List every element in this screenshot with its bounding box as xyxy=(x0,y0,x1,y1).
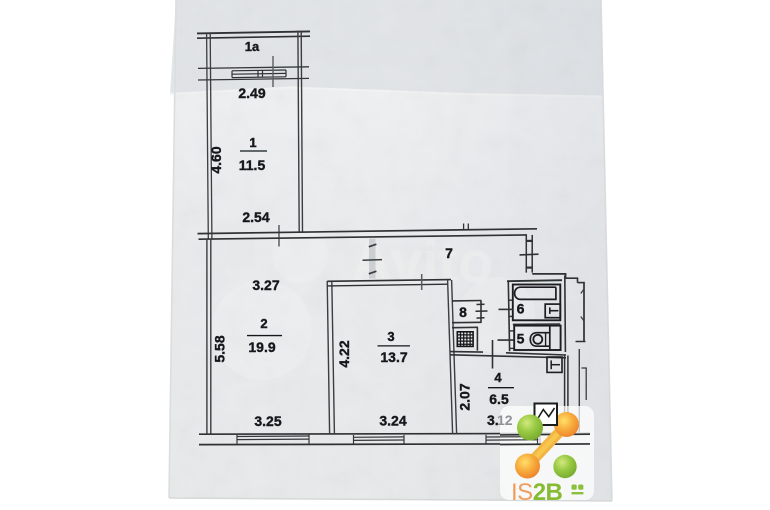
svg-text:1a: 1a xyxy=(245,39,260,54)
svg-text:7: 7 xyxy=(445,245,453,261)
svg-text:1: 1 xyxy=(249,135,256,150)
svg-text:13.7: 13.7 xyxy=(380,349,407,365)
svg-text:2.07: 2.07 xyxy=(457,383,473,410)
svg-text:3.25: 3.25 xyxy=(254,413,281,429)
svg-text:5: 5 xyxy=(517,331,525,347)
svg-text:5.58: 5.58 xyxy=(212,335,228,362)
svg-text:19.9: 19.9 xyxy=(248,339,275,355)
svg-text:2: 2 xyxy=(260,316,267,331)
svg-text:2.54: 2.54 xyxy=(242,209,269,225)
svg-text:2.49: 2.49 xyxy=(238,85,265,101)
svg-text:4.22: 4.22 xyxy=(336,340,352,367)
svg-text:6: 6 xyxy=(517,301,525,317)
svg-text:3.24: 3.24 xyxy=(379,413,406,429)
svg-text:3: 3 xyxy=(387,329,394,344)
svg-text:IS2B: IS2B xyxy=(511,479,563,506)
svg-text:8: 8 xyxy=(459,304,467,320)
svg-text:6.5: 6.5 xyxy=(489,391,509,407)
svg-text:3.27: 3.27 xyxy=(252,277,279,293)
svg-text:11.5: 11.5 xyxy=(239,157,266,173)
svg-text:4.60: 4.60 xyxy=(208,146,224,173)
svg-text:12: 12 xyxy=(497,412,513,428)
svg-text:4: 4 xyxy=(494,370,502,385)
